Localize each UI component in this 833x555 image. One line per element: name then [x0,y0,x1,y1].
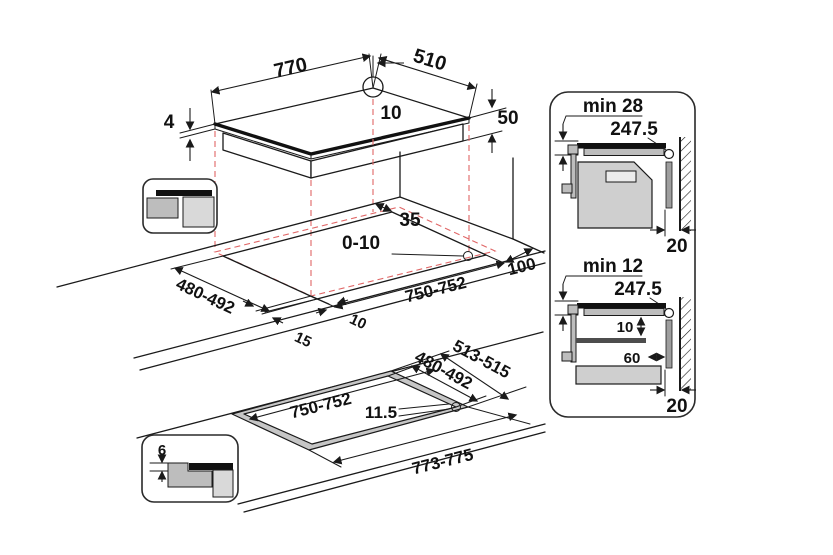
installation-diagram: 10 770 510 4 50 35 0-10 [0,0,833,555]
mounting-tab [562,184,572,193]
dim-corner-radius-label: 11.5 [365,403,397,422]
hob-glass-section [577,143,666,149]
mounting-clamp [568,145,578,154]
flush-recess-ledge [232,371,468,450]
inset-cabinet-block [147,198,178,218]
min-distance-oven-label: min 28 [583,96,643,117]
dim-body-height-label: 50 [497,108,518,129]
spacer-pin [665,150,674,159]
dim-hob-depth-label: 510 [411,45,449,76]
rear-spacer [666,320,672,368]
worktop-cutout-view: 35 0-10 480-492 15 10 750-752 100 [57,152,545,370]
hob-body-section [584,149,664,156]
hob-glass-section [577,303,666,309]
separator-shelf [576,338,646,343]
dim-rear-clearance-label: 35 [399,210,421,231]
flush-mount-inset: 6 [142,435,238,502]
mounting-tab [562,352,572,361]
wall-gap-oven-label: 20 [666,236,687,257]
half-width-drawer-label: 247.5 [614,279,662,300]
inset-appliance-block [183,197,214,227]
dim-hob-width-label: 770 [272,54,309,83]
hob-isometric-view: 10 770 510 4 50 [164,45,519,178]
oven-vent [606,171,636,182]
installation-diagram-page: 10 770 510 4 50 35 0-10 [0,0,833,555]
half-width-oven-label: 247.5 [610,119,658,140]
dim-cutout-width-label: 750-752 [403,273,468,307]
min-distance-drawer-label: min 12 [583,256,643,277]
surface-mount-inset [143,179,217,233]
clearance-panel: min 28 247.5 20 min 12 [550,92,696,417]
wall-hatch [681,137,691,231]
wall-gap-drawer-label: 20 [666,396,687,417]
hob-body-section [584,309,664,316]
drawer-body [576,366,661,384]
dim-cutout-depth-label: 480-492 [173,274,238,318]
dim-glass-thickness-label: 4 [164,112,175,133]
spacer-pin [665,309,674,318]
dim-wall-clearance-label: 100 [506,254,538,279]
dim-recess-depth-label: 6 [158,442,166,459]
inset-glass-bar [156,190,212,196]
wall-hatch [681,297,691,391]
mounting-clamp [568,305,578,314]
dim-front-overhang-label: 15 [292,329,314,351]
bottom-gap-label: 10 [617,319,634,336]
depth-clearance-label: 60 [624,350,641,367]
inset-flush-glass-bar [189,463,233,470]
inset-appliance-block [213,470,233,497]
dim-flush-outer-width-label: 773-775 [410,445,475,479]
dim-edge-gap-label: 0-10 [342,233,380,254]
rear-spacer [666,162,672,208]
dim-hole-offset-label: 10 [380,103,401,124]
